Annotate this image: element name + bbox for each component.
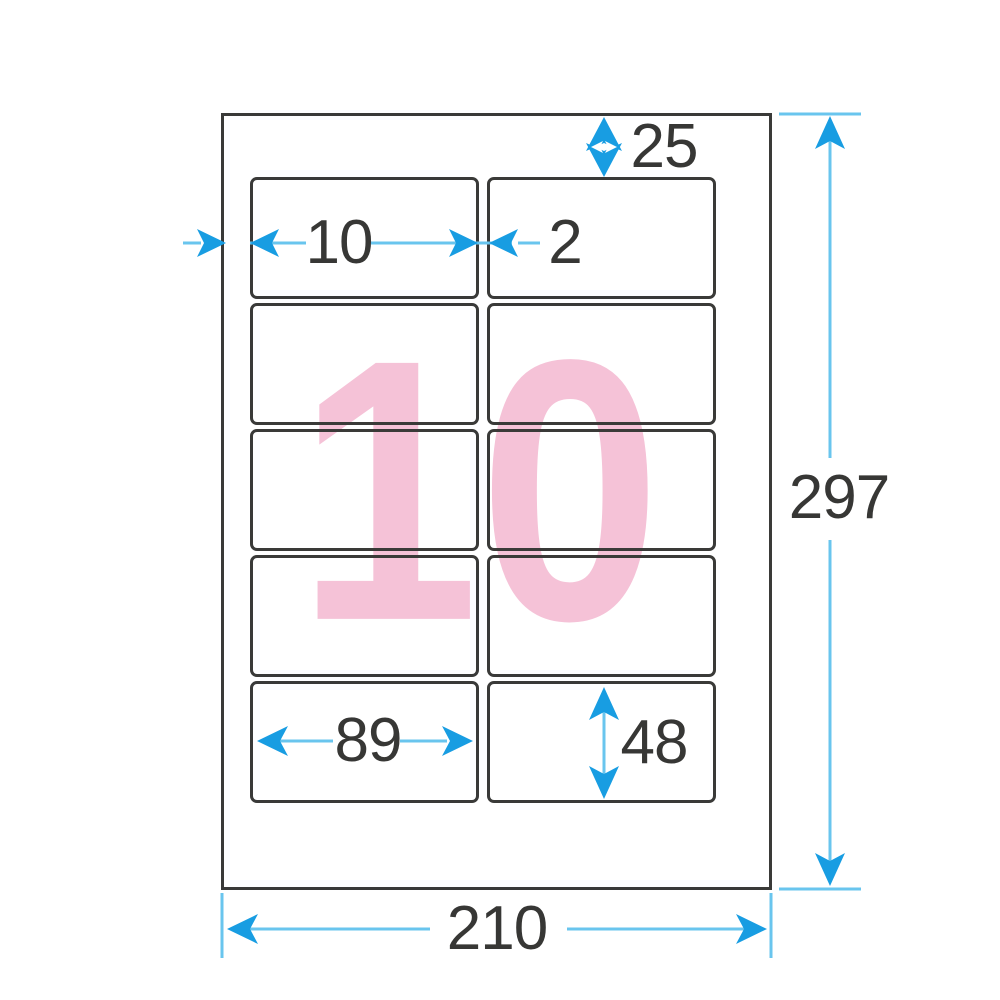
label-cell [487,555,716,677]
label-cell [487,429,716,551]
label-cell [250,429,479,551]
label-cell [250,303,479,425]
dimension-label-sheet-height: 297 [789,467,889,529]
dimension-label-label-height: 48 [621,712,688,774]
dimension-label-left-margin: 10 [306,212,373,274]
label-cell [250,555,479,677]
label-cell [487,303,716,425]
dimension-label-sheet-width: 210 [447,898,547,960]
dimension-label-column-gap: 2 [548,212,581,274]
label-cell [487,177,716,299]
dimension-label-label-width: 89 [335,710,402,772]
label-sheet-dimension-diagram: 10 [0,0,1000,1000]
dimension-label-top-margin: 25 [631,116,698,178]
